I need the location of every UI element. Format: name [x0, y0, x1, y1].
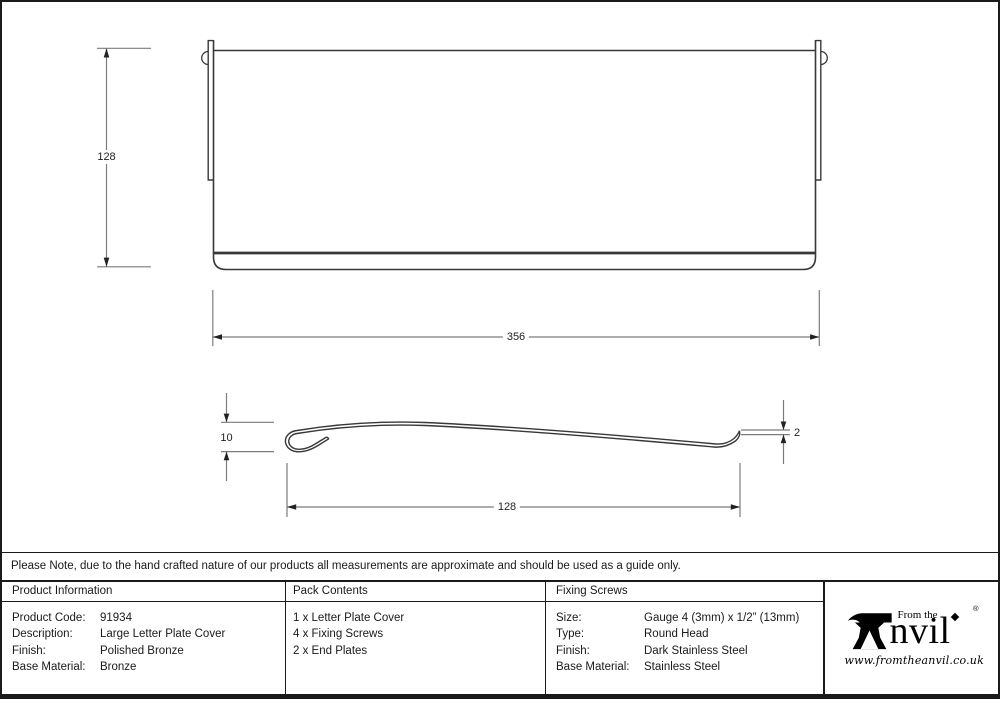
measurement-disclaimer-note: Please Note, due to the hand crafted nat… [11, 560, 681, 572]
arrow-up [104, 48, 110, 57]
list-item: 4 x Fixing Screws [293, 626, 538, 642]
logo-website: www.fromtheanvil.co.uk [845, 654, 979, 667]
diamond-tittle-icon [950, 613, 958, 621]
spec-label: Finish: [12, 643, 100, 659]
pack-contents-header: Pack Contents [293, 585, 368, 597]
spec-label: Size: [556, 610, 644, 626]
arrow-left [287, 504, 296, 510]
table-row: Finish: Polished Bronze [12, 643, 280, 659]
table-divider-1 [285, 580, 287, 698]
arrow-up [781, 435, 787, 444]
anvil-icon [847, 611, 892, 650]
arrow-right [731, 504, 740, 510]
table-row: Size: Gauge 4 (3mm) x 1/2” (13mm) [556, 610, 818, 626]
dim-label-front-width: 356 [503, 330, 529, 344]
spec-label: Finish: [556, 643, 644, 659]
border-left [0, 0, 2, 699]
arrow-down [104, 258, 110, 267]
product-information-header: Product Information [12, 585, 112, 597]
brand-logo-cell: From the nvil ® www.fromtheanvil.co.uk [825, 581, 998, 693]
spec-value: Bronze [100, 659, 136, 675]
pack-contents-body: 1 x Letter Plate Cover 4 x Fixing Screws… [293, 610, 538, 659]
spec-label: Base Material: [556, 659, 644, 675]
front-view-outline [202, 40, 828, 270]
dim-label-profile-width: 128 [494, 500, 520, 514]
table-row: Base Material: Bronze [12, 659, 280, 675]
list-item: 1 x Letter Plate Cover [293, 610, 538, 626]
from-the-anvil-logo: From the nvil ® www.fromtheanvil.co.uk [847, 608, 977, 666]
table-header-rule [0, 601, 824, 603]
dim-label-front-height: 128 [93, 150, 119, 164]
arrow-up [224, 452, 230, 461]
spec-value: Large Letter Plate Cover [100, 626, 225, 642]
table-row: Description: Large Letter Plate Cover [12, 626, 280, 642]
spec-sheet: 128 356 10 2 128 Please Note, due to the… [0, 0, 1000, 703]
arrow-left [213, 334, 222, 340]
dim-lines-thickness [741, 400, 790, 464]
registered-mark: ® [973, 604, 979, 613]
table-row: Base Material: Stainless Steel [556, 659, 818, 675]
arrow-right [810, 334, 819, 340]
spec-value: Gauge 4 (3mm) x 1/2” (13mm) [644, 610, 799, 626]
arrow-down [224, 414, 230, 423]
spec-value: 91934 [100, 610, 132, 626]
table-row: Finish: Dark Stainless Steel [556, 643, 818, 659]
table-divider-2 [545, 580, 547, 698]
note-bar-top-rule [0, 552, 1000, 554]
dim-label-projection: 10 [216, 431, 236, 445]
fixing-screws-header: Fixing Screws [556, 585, 628, 597]
table-row: Product Code: 91934 [12, 610, 280, 626]
fixing-screws-body: Size: Gauge 4 (3mm) x 1/2” (13mm) Type: … [556, 610, 818, 676]
letter-plate-technical-drawing [0, 0, 1000, 552]
spec-label: Type: [556, 626, 644, 642]
dim-label-thickness: 2 [790, 426, 804, 440]
product-information-body: Product Code: 91934 Description: Large L… [12, 610, 280, 676]
spec-value: Stainless Steel [644, 659, 720, 675]
list-item: 2 x End Plates [293, 643, 538, 659]
spec-label: Base Material: [12, 659, 100, 675]
border-bottom [0, 694, 1000, 699]
spec-value: Polished Bronze [100, 643, 184, 659]
spec-value: Dark Stainless Steel [644, 643, 748, 659]
spec-label: Product Code: [12, 610, 100, 626]
arrow-down [781, 422, 787, 431]
logo-brand-name: nvil [890, 612, 951, 650]
spec-value: Round Head [644, 626, 709, 642]
spec-label: Description: [12, 626, 100, 642]
table-row: Type: Round Head [556, 626, 818, 642]
profile-view-outline [285, 422, 739, 452]
border-top [0, 0, 1000, 2]
